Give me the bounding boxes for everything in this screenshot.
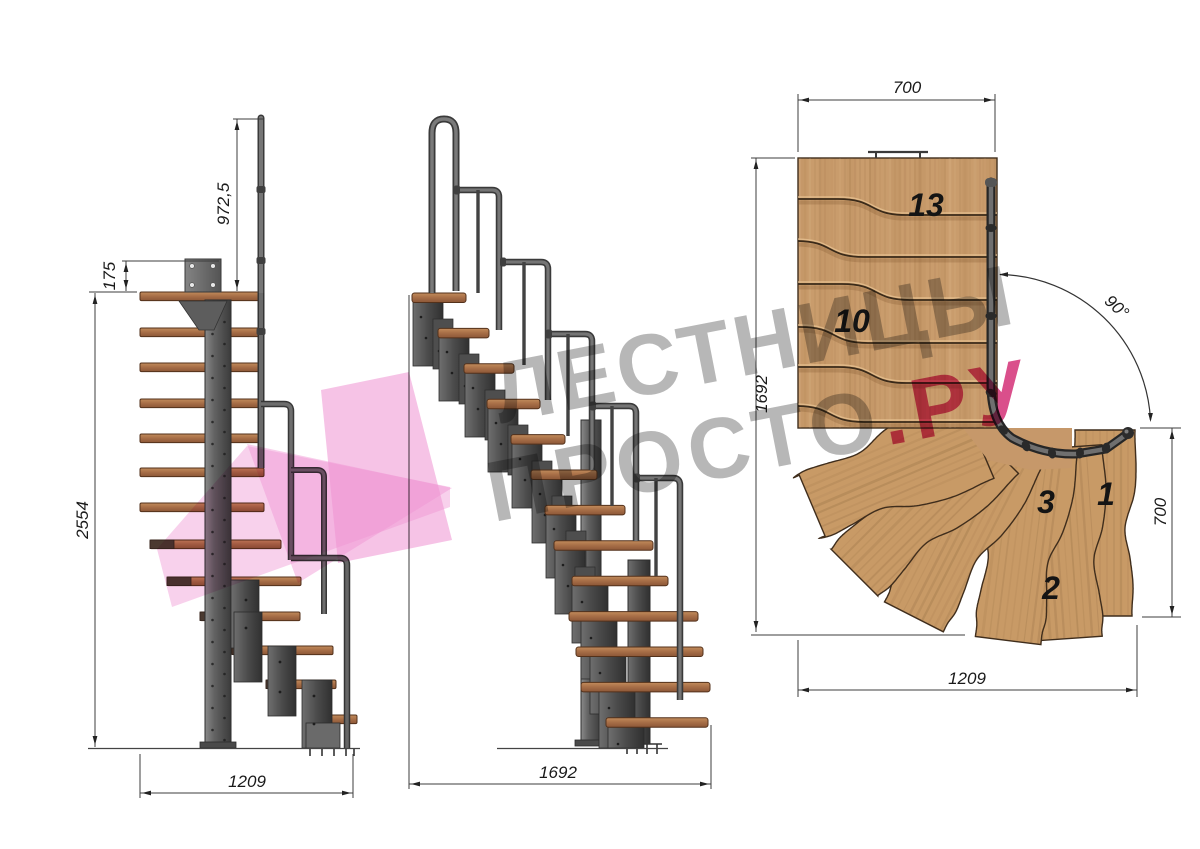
svg-text:13: 13 (908, 187, 944, 223)
svg-text:175: 175 (100, 261, 119, 290)
svg-text:3: 3 (1037, 484, 1055, 520)
svg-text:1209: 1209 (228, 772, 266, 791)
svg-text:1209: 1209 (948, 669, 986, 688)
svg-text:1: 1 (1097, 476, 1115, 512)
svg-text:1692: 1692 (539, 763, 577, 782)
svg-text:700: 700 (893, 78, 922, 97)
svg-text:2: 2 (1041, 570, 1060, 606)
svg-text:2554: 2554 (73, 501, 92, 540)
svg-text:700: 700 (1151, 497, 1170, 526)
svg-text:972,5: 972,5 (214, 182, 233, 225)
